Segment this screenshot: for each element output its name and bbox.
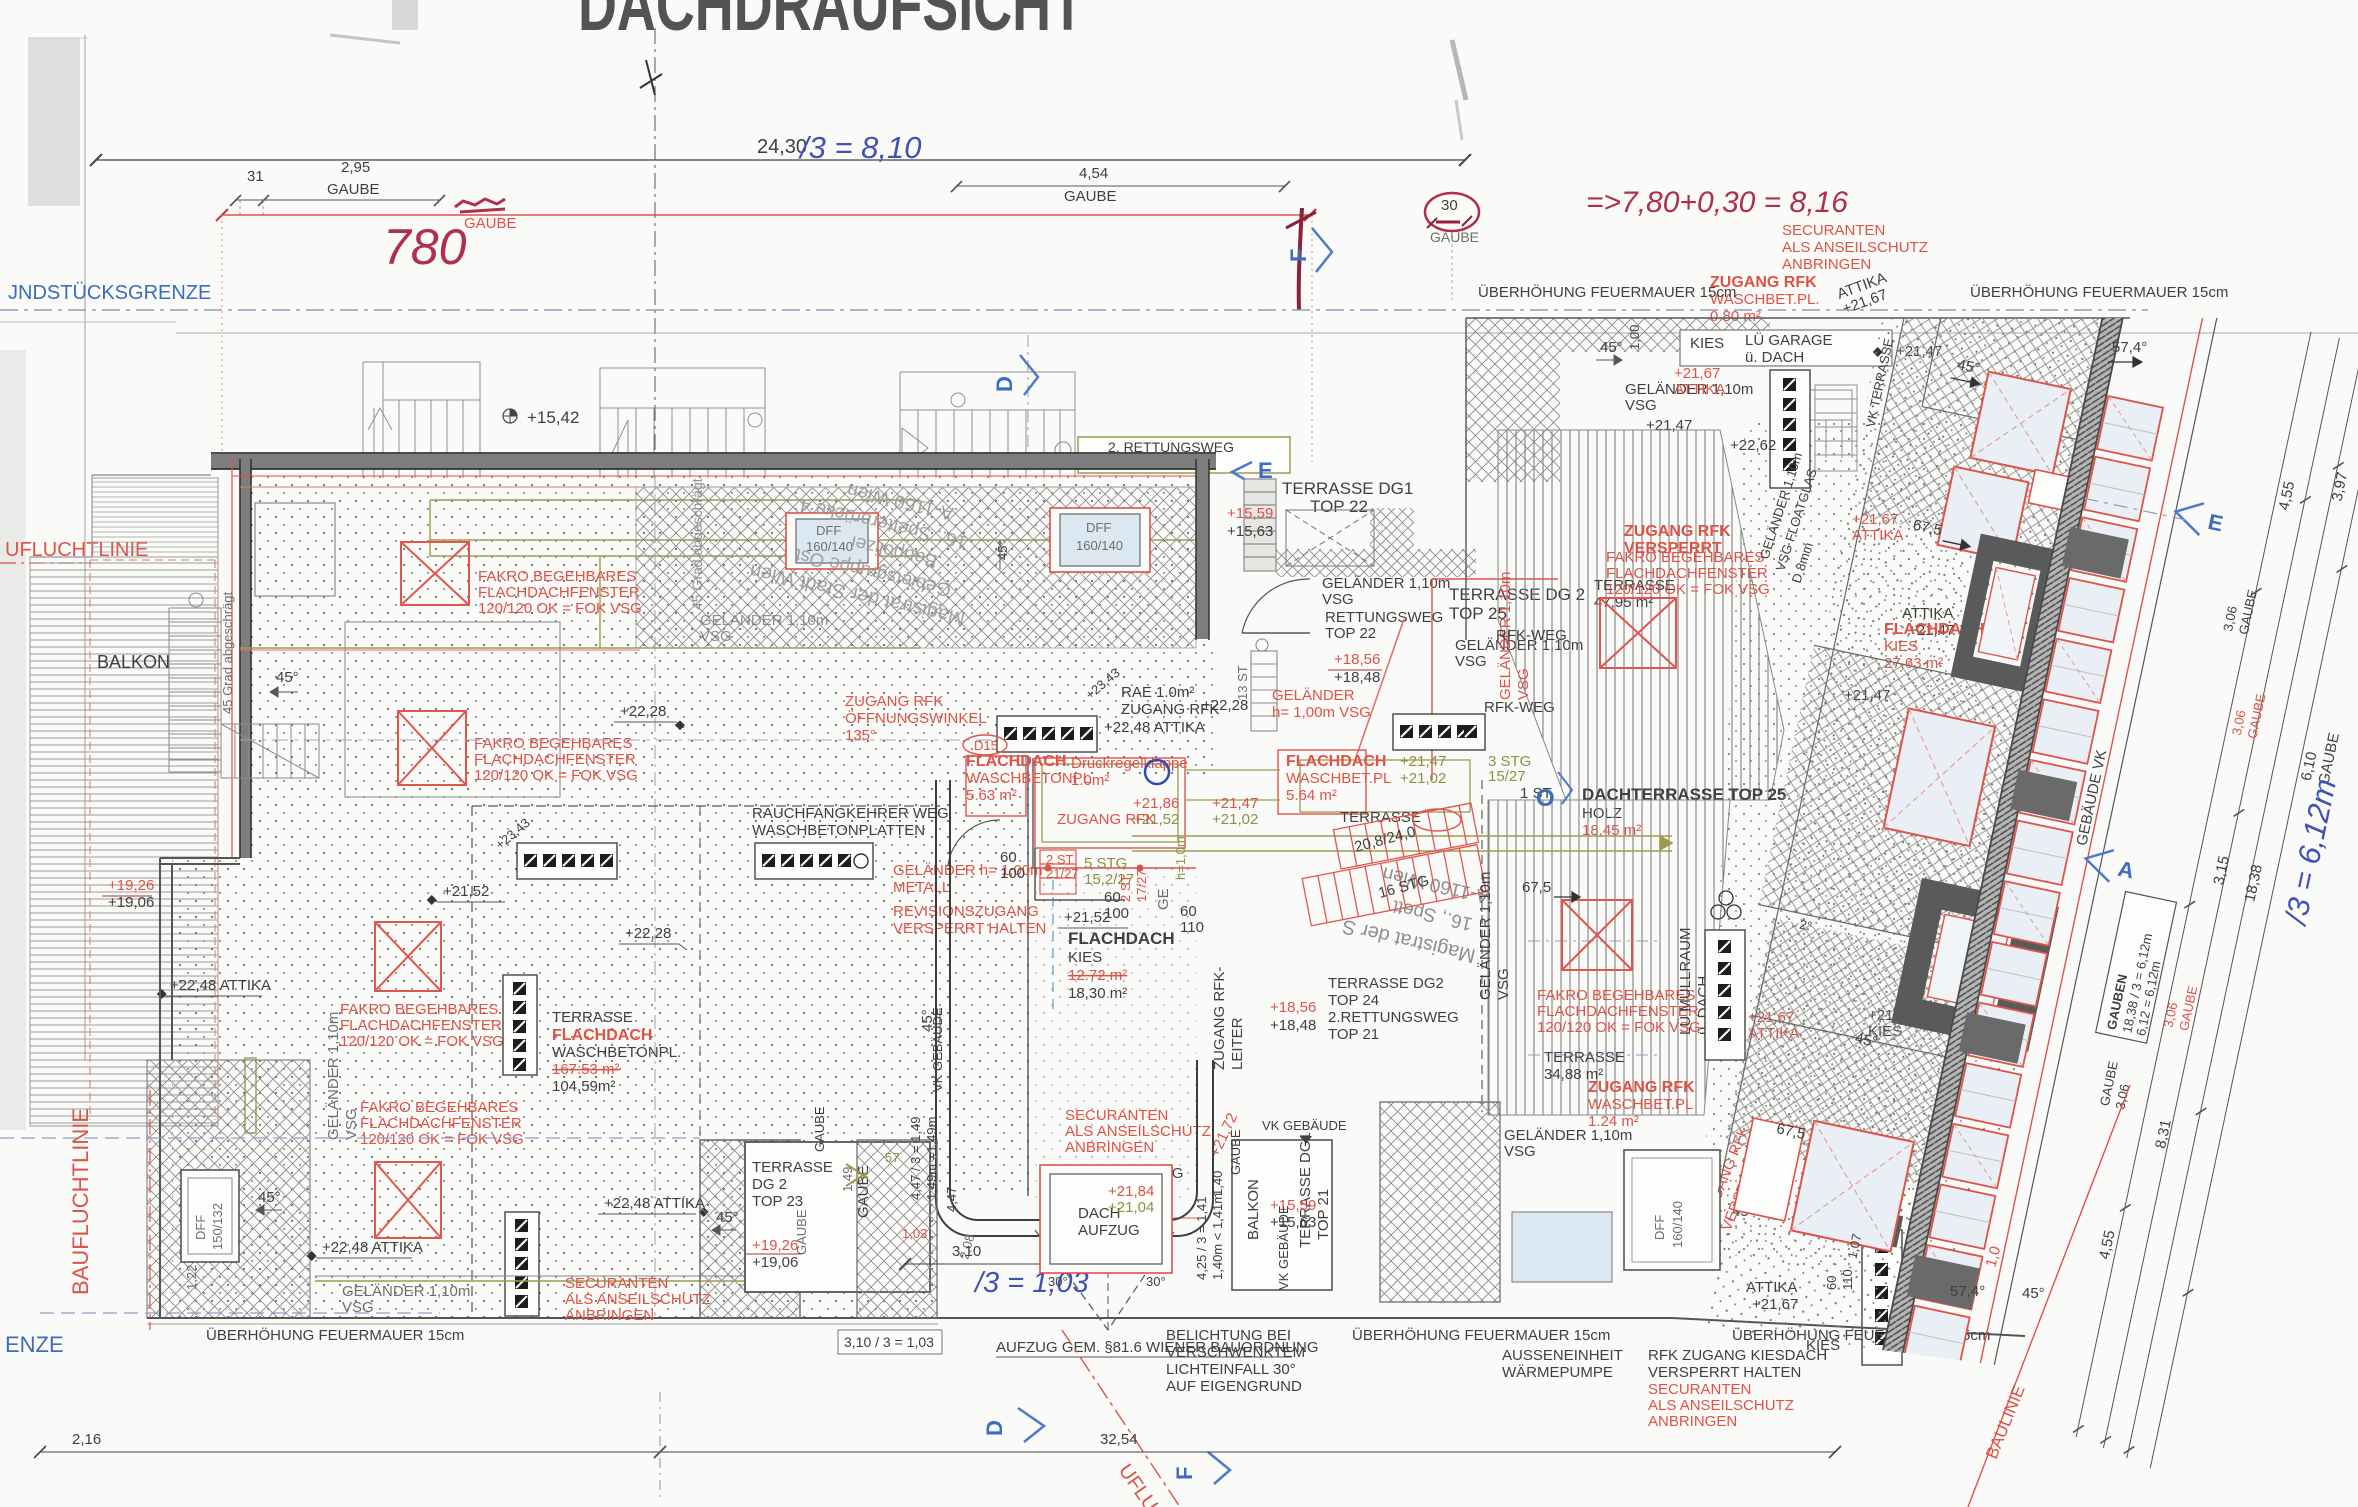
svg-text:GAUBE: GAUBE bbox=[1430, 229, 1479, 245]
svg-text:+19,26: +19,26 bbox=[108, 877, 154, 894]
svg-text:160/140: 160/140 bbox=[1076, 538, 1123, 553]
svg-text:F: F bbox=[1172, 1467, 1197, 1480]
svg-text:+22,48 ATTIKA: +22,48 ATTIKA bbox=[604, 1195, 705, 1212]
svg-text:45 Grad abgeschrägt: 45 Grad abgeschrägt bbox=[220, 591, 235, 714]
svg-text:+21,02: +21,02 bbox=[1400, 770, 1446, 787]
svg-text:+18,48: +18,48 bbox=[1334, 669, 1380, 686]
svg-text:VSG: VSG bbox=[1515, 668, 1532, 700]
svg-text:TERRASSE DG1: TERRASSE DG1 bbox=[1282, 479, 1413, 498]
svg-text:57,4°: 57,4° bbox=[2112, 339, 2147, 356]
svg-text:1,22: 1,22 bbox=[184, 1265, 199, 1290]
svg-text:+22,62: +22,62 bbox=[1730, 437, 1776, 454]
svg-text:ZUGANG RFK-: ZUGANG RFK- bbox=[1211, 967, 1228, 1070]
svg-text:SECURANTEN: SECURANTEN bbox=[1065, 1107, 1168, 1124]
svg-text:O: O bbox=[1536, 785, 1555, 812]
svg-text:45 Grad abgeschrägt: 45 Grad abgeschrägt bbox=[689, 478, 705, 610]
svg-text:FLACHDACHFENSTER: FLACHDACHFENSTER bbox=[340, 1017, 502, 1034]
svg-text:ANBRINGEN: ANBRINGEN bbox=[565, 1307, 654, 1324]
svg-text:ZUGANG RFK: ZUGANG RFK bbox=[845, 693, 943, 710]
svg-text:LÜ MÜLLRAUM: LÜ MÜLLRAUM bbox=[1676, 927, 1694, 1035]
svg-text:LICHTEINFALL 30°: LICHTEINFALL 30° bbox=[1166, 1361, 1296, 1378]
svg-text:+21,86: +21,86 bbox=[1133, 795, 1179, 812]
svg-text:4,54: 4,54 bbox=[1079, 165, 1108, 182]
svg-text:WASCHBET.PL: WASCHBET.PL bbox=[1588, 1096, 1693, 1113]
svg-text:+21,04: +21,04 bbox=[1108, 1199, 1154, 1216]
svg-text:+21,47: +21,47 bbox=[1212, 795, 1258, 812]
svg-text:LEITER: LEITER bbox=[1229, 1017, 1246, 1070]
svg-text:FLACHDACHFENSTER: FLACHDACHFENSTER bbox=[474, 751, 636, 768]
svg-text:100: 100 bbox=[1000, 865, 1025, 882]
svg-text:TOP 21: TOP 21 bbox=[1328, 1026, 1379, 1043]
svg-text:1,40: 1,40 bbox=[1210, 1171, 1225, 1196]
svg-text:ANBRINGEN: ANBRINGEN bbox=[1782, 256, 1871, 273]
svg-text:FAKRO BEGEHBARES: FAKRO BEGEHBARES bbox=[474, 735, 632, 752]
svg-text:VSG: VSG bbox=[1504, 1143, 1536, 1160]
svg-text:FAKRO BEGEHBARES: FAKRO BEGEHBARES bbox=[1606, 549, 1764, 566]
svg-text:FLACHDACHFENSTER: FLACHDACHFENSTER bbox=[478, 584, 640, 601]
svg-text:BAUFLUCHTLINIE: BAUFLUCHTLINIE bbox=[68, 1108, 93, 1295]
svg-text:GAUBE: GAUBE bbox=[1228, 1129, 1243, 1175]
svg-text:Druckregelklappe: Druckregelklappe bbox=[1071, 755, 1188, 772]
svg-text:AUSSENEINHEIT: AUSSENEINHEIT bbox=[1502, 1347, 1623, 1364]
svg-text:1.0m²: 1.0m² bbox=[1071, 772, 1109, 789]
svg-text:+22,48 ATTIKA: +22,48 ATTIKA bbox=[322, 1239, 423, 1256]
svg-text:FLACHDACH: FLACHDACH bbox=[552, 1027, 652, 1044]
svg-text:WÄRMEPUMPE: WÄRMEPUMPE bbox=[1502, 1364, 1613, 1381]
svg-text:VK GEBÄUDE: VK GEBÄUDE bbox=[1276, 1205, 1291, 1290]
svg-text:VSG: VSG bbox=[700, 628, 732, 645]
svg-text:GAUBE: GAUBE bbox=[794, 1209, 809, 1255]
svg-text:32,54: 32,54 bbox=[1100, 1431, 1138, 1448]
svg-text:45°: 45° bbox=[995, 540, 1010, 560]
svg-text:JNDSTÜCKSGRENZE: JNDSTÜCKSGRENZE bbox=[8, 282, 211, 304]
svg-text:VK GEBÄUDE: VK GEBÄUDE bbox=[1262, 1118, 1347, 1133]
svg-text:135°: 135° bbox=[845, 727, 876, 744]
svg-text:ÜBERHÖHUNG FEUERMAUER 15cm: ÜBERHÖHUNG FEUERMAUER 15cm bbox=[206, 1326, 464, 1344]
svg-text:+21,84: +21,84 bbox=[1108, 1183, 1154, 1200]
svg-text:VERSPERRT HALTEN: VERSPERRT HALTEN bbox=[1648, 1364, 1801, 1381]
svg-text:VERSCHWENKTEM: VERSCHWENKTEM bbox=[1166, 1344, 1305, 1361]
svg-text:1,49: 1,49 bbox=[840, 1167, 855, 1192]
svg-text:31: 31 bbox=[247, 168, 264, 185]
svg-text:5.63 m²: 5.63 m² bbox=[966, 787, 1017, 804]
svg-text:TOP 21: TOP 21 bbox=[1315, 1189, 1332, 1240]
svg-text:GELÄNDER 1,10m: GELÄNDER 1,10m bbox=[325, 1012, 342, 1140]
svg-text:+19,26: +19,26 bbox=[752, 1237, 798, 1254]
svg-text:FAKRO BEGEHBARES: FAKRO BEGEHBARES bbox=[340, 1001, 498, 1018]
svg-text:18,30 m²: 18,30 m² bbox=[1068, 985, 1127, 1002]
svg-text:+21,52: +21,52 bbox=[443, 883, 489, 900]
svg-text:1,49m =1,49m: 1,49m =1,49m bbox=[924, 1117, 939, 1200]
svg-text:12.72 m²: 12.72 m² bbox=[1068, 967, 1127, 984]
svg-text:2,95: 2,95 bbox=[341, 159, 370, 176]
svg-text:DFF: DFF bbox=[1652, 1215, 1667, 1240]
svg-text:FLACHDACH: FLACHDACH bbox=[1068, 929, 1175, 948]
svg-text:DACHDRAUFSICHT: DACHDRAUFSICHT bbox=[578, 0, 1084, 46]
svg-text:REVISIONSZUGANG: REVISIONSZUGANG bbox=[893, 903, 1039, 920]
svg-text:1,00: 1,00 bbox=[1627, 325, 1642, 350]
svg-text:VK GEBÄUDE: VK GEBÄUDE bbox=[930, 1007, 945, 1092]
svg-text:120/120 OK = FOK VSG: 120/120 OK = FOK VSG bbox=[1606, 581, 1770, 598]
svg-text:GELÄNDER 1,10m: GELÄNDER 1,10m bbox=[342, 1283, 470, 1300]
svg-text:GAUBE: GAUBE bbox=[327, 181, 380, 198]
svg-text:ENZE: ENZE bbox=[5, 1332, 64, 1357]
svg-text:ZUGANG RFK: ZUGANG RFK bbox=[1624, 523, 1731, 540]
svg-text:/3 = 8,10: /3 = 8,10 bbox=[798, 130, 922, 165]
svg-text:5.64 m²: 5.64 m² bbox=[1286, 787, 1337, 804]
svg-text:TERRASSE: TERRASSE bbox=[1544, 1049, 1625, 1066]
svg-text:1,03: 1,03 bbox=[902, 1226, 927, 1241]
svg-text:KIES: KIES bbox=[1690, 335, 1724, 352]
svg-text:ÜBERHÖHUNG FEUERMAUER 15cm: ÜBERHÖHUNG FEUERMAUER 15cm bbox=[1970, 283, 2228, 301]
svg-text:+15,63: +15,63 bbox=[1227, 523, 1273, 540]
svg-text:ANBRINGEN: ANBRINGEN bbox=[1065, 1139, 1154, 1156]
svg-text:ÖFFNUNGSWINKEL: ÖFFNUNGSWINKEL bbox=[845, 709, 987, 727]
svg-text:67,5: 67,5 bbox=[1522, 879, 1551, 896]
svg-text:D: D bbox=[992, 376, 1017, 392]
svg-text:ZUGANG RFK: ZUGANG RFK bbox=[1588, 1079, 1695, 1096]
svg-text:GAUBE: GAUBE bbox=[1064, 188, 1117, 205]
svg-text:GELÄNDER 1,10m: GELÄNDER 1,10m bbox=[1477, 872, 1494, 1000]
svg-text:+19,06: +19,06 bbox=[108, 894, 154, 911]
svg-text:BELICHTUNG BEI: BELICHTUNG BEI bbox=[1166, 1327, 1291, 1344]
svg-text:F: F bbox=[1286, 249, 1311, 262]
svg-text:780: 780 bbox=[383, 219, 467, 275]
svg-text:GAUBE: GAUBE bbox=[812, 1106, 827, 1152]
svg-text:+15,42: +15,42 bbox=[527, 408, 579, 427]
svg-text:+18,56: +18,56 bbox=[1270, 999, 1316, 1016]
svg-text:120/120 OK = FOK VSG: 120/120 OK = FOK VSG bbox=[474, 767, 638, 784]
svg-text:SECURANTEN: SECURANTEN bbox=[565, 1275, 668, 1292]
svg-text:FAKRO BEGEHBARES: FAKRO BEGEHBARES bbox=[1537, 987, 1695, 1004]
svg-text:BALKON: BALKON bbox=[1245, 1179, 1262, 1240]
svg-text:RFK-WEG: RFK-WEG bbox=[1496, 627, 1567, 644]
svg-text:1,40m < 1,41m: 1,40m < 1,41m bbox=[1210, 1193, 1225, 1280]
svg-text:160/140: 160/140 bbox=[1670, 1201, 1685, 1248]
svg-text:D: D bbox=[982, 1420, 1007, 1436]
svg-text:4,25 / 3 = 1,41: 4,25 / 3 = 1,41 bbox=[1194, 1197, 1209, 1280]
svg-text:DG 2: DG 2 bbox=[752, 1176, 787, 1193]
svg-text:ANBRINGEN: ANBRINGEN bbox=[1648, 1413, 1737, 1430]
svg-text:TOP 24: TOP 24 bbox=[1328, 992, 1379, 1009]
svg-text:ÜBERHÖHUNG FEUERMAUER 15cm: ÜBERHÖHUNG FEUERMAUER 15cm bbox=[1478, 283, 1736, 301]
svg-text:+18,48: +18,48 bbox=[1270, 1017, 1316, 1034]
svg-text:AUF EIGENGRUND: AUF EIGENGRUND bbox=[1166, 1378, 1302, 1395]
svg-text:TERRASSE DG2: TERRASSE DG2 bbox=[1328, 975, 1444, 992]
svg-text:VSG: VSG bbox=[1495, 968, 1512, 1000]
svg-text:GELÄNDER 1,10m: GELÄNDER 1,10m bbox=[700, 612, 828, 629]
svg-text:+22,28: +22,28 bbox=[620, 703, 666, 720]
svg-text:FAKRO BEGEHBARES: FAKRO BEGEHBARES bbox=[360, 1099, 518, 1116]
svg-text:GAUBE: GAUBE bbox=[464, 215, 517, 232]
svg-text:SECURANTEN: SECURANTEN bbox=[1782, 222, 1885, 239]
svg-text:13 ST: 13 ST bbox=[1235, 665, 1250, 700]
svg-text:TOP 23: TOP 23 bbox=[752, 1193, 803, 1210]
svg-text:ALS ANSEILSCHUTZ: ALS ANSEILSCHUTZ bbox=[565, 1291, 711, 1308]
svg-text:+21,67: +21,67 bbox=[1674, 365, 1720, 382]
svg-text:ALS ANSEILSCHUTZ: ALS ANSEILSCHUTZ bbox=[1782, 239, 1928, 256]
svg-text:150/132: 150/132 bbox=[210, 1203, 225, 1250]
svg-text:ZUGANG RFK: ZUGANG RFK bbox=[1057, 811, 1155, 828]
svg-text:+21,47: +21,47 bbox=[1400, 753, 1446, 770]
svg-text:FLACHDACHFENSTER: FLACHDACHFENSTER bbox=[1606, 565, 1768, 582]
svg-text:+22,48 ATTIKA: +22,48 ATTIKA bbox=[1104, 719, 1205, 736]
svg-text:AUFZUG: AUFZUG bbox=[1078, 1222, 1140, 1239]
svg-text:WASCHBETONPLATTEN: WASCHBETONPLATTEN bbox=[752, 822, 925, 839]
svg-text:45°: 45° bbox=[2022, 1285, 2045, 1302]
svg-text:FLACHDACH: FLACHDACH bbox=[1286, 753, 1386, 770]
svg-text:4,47 / 3 = 1,49: 4,47 / 3 = 1,49 bbox=[908, 1117, 923, 1200]
svg-text:METALL: METALL bbox=[893, 879, 950, 896]
svg-text:LÜ GARAGE: LÜ GARAGE bbox=[1745, 331, 1833, 349]
svg-text:VSG: VSG bbox=[343, 1108, 360, 1140]
svg-text:TERRASSE: TERRASSE bbox=[552, 1009, 633, 1026]
svg-text:=>7,80+0,30 = 8,16: =>7,80+0,30 = 8,16 bbox=[1586, 186, 1848, 219]
svg-text:2 ST: 2 ST bbox=[1046, 852, 1074, 867]
svg-text:GAUBE: GAUBE bbox=[855, 1165, 872, 1218]
svg-text:30°: 30° bbox=[1048, 1274, 1068, 1289]
svg-text:104,59m²: 104,59m² bbox=[552, 1078, 615, 1095]
svg-text:VSG: VSG bbox=[1455, 653, 1487, 670]
svg-text:FLACHDACHFENSTER: FLACHDACHFENSTER bbox=[360, 1115, 522, 1132]
svg-text:57,4°: 57,4° bbox=[1950, 1283, 1985, 1300]
svg-text:TOP 22: TOP 22 bbox=[1310, 497, 1368, 516]
svg-text:RAE 1.0m²: RAE 1.0m² bbox=[1121, 684, 1194, 701]
svg-text:TOP 22: TOP 22 bbox=[1325, 625, 1376, 642]
svg-text:45°: 45° bbox=[1600, 339, 1623, 356]
svg-text:SECURANTEN: SECURANTEN bbox=[1648, 1381, 1751, 1398]
svg-text:DFF: DFF bbox=[816, 523, 841, 538]
svg-text:RAUCHFANGKEHRER WEG: RAUCHFANGKEHRER WEG bbox=[752, 805, 949, 822]
svg-text:ü. DACH: ü. DACH bbox=[1745, 349, 1804, 366]
svg-text:FAKRO BEGEHBARES: FAKRO BEGEHBARES bbox=[478, 568, 636, 585]
svg-text:GELÄNDER 1,10m: GELÄNDER 1,10m bbox=[1322, 575, 1450, 592]
svg-text:3,10: 3,10 bbox=[952, 1243, 981, 1260]
svg-text:30: 30 bbox=[1441, 197, 1458, 214]
svg-text:VERSPERRT HALTEN: VERSPERRT HALTEN bbox=[893, 920, 1046, 937]
svg-text:TERRASSE: TERRASSE bbox=[752, 1159, 833, 1176]
svg-text:+22,48 ATTIKA: +22,48 ATTIKA bbox=[170, 977, 271, 994]
svg-text:GELÄNDER: GELÄNDER bbox=[1272, 687, 1355, 704]
svg-text:15/27: 15/27 bbox=[1488, 768, 1526, 785]
svg-text:+22,28: +22,28 bbox=[1202, 697, 1248, 714]
svg-text:120/120 OK = FOK VSG: 120/120 OK = FOK VSG bbox=[478, 600, 642, 617]
svg-text:D15: D15 bbox=[974, 738, 998, 753]
svg-text:VSG: VSG bbox=[1625, 397, 1657, 414]
svg-text:57: 57 bbox=[885, 1150, 899, 1165]
svg-text:DFF: DFF bbox=[193, 1215, 208, 1240]
svg-text:+15,59: +15,59 bbox=[1227, 505, 1273, 522]
svg-text:h= 1,00m VSG: h= 1,00m VSG bbox=[1272, 704, 1371, 721]
svg-text:45°: 45° bbox=[276, 669, 299, 686]
svg-text:GELÄNDER 1,10m: GELÄNDER 1,10m bbox=[1504, 1127, 1632, 1144]
svg-text:2.RETTUNGSWEG: 2.RETTUNGSWEG bbox=[1328, 1009, 1459, 1026]
svg-text:DFF: DFF bbox=[1086, 520, 1111, 535]
svg-text:ÜBERHÖHUNG FEUERMAUER 15cm: ÜBERHÖHUNG FEUERMAUER 15cm bbox=[1352, 1326, 1610, 1344]
svg-text:RETTUNGSWEG: RETTUNGSWEG bbox=[1325, 609, 1443, 626]
svg-text:FLACHDACHFENSTER: FLACHDACHFENSTER bbox=[1537, 1003, 1699, 1020]
svg-text:RFK ZUGANG KIESDACH: RFK ZUGANG KIESDACH bbox=[1648, 1347, 1827, 1364]
svg-text:ALS ANSEILSCHUTZ: ALS ANSEILSCHUTZ bbox=[1648, 1397, 1794, 1414]
svg-text:45°: 45° bbox=[258, 1189, 281, 1206]
svg-text:120/120 OK = FOK VSG: 120/120 OK = FOK VSG bbox=[360, 1131, 524, 1148]
svg-text:3,10 / 3 = 1,03: 3,10 / 3 = 1,03 bbox=[844, 1334, 934, 1350]
svg-text:WASCHBETONPL.: WASCHBETONPL. bbox=[552, 1044, 681, 1061]
svg-text:120/120 OK = FOK VSG: 120/120 OK = FOK VSG bbox=[340, 1033, 504, 1050]
svg-text:+22,28: +22,28 bbox=[625, 925, 671, 942]
svg-text:45°: 45° bbox=[716, 1209, 739, 1226]
svg-text:4,47: 4,47 bbox=[944, 1187, 959, 1212]
svg-text:30°: 30° bbox=[1146, 1274, 1166, 1289]
svg-text:2,16: 2,16 bbox=[72, 1431, 101, 1448]
svg-text:BALKON: BALKON bbox=[97, 652, 170, 672]
svg-text:ALS ANSEILSCHUTZ: ALS ANSEILSCHUTZ bbox=[1065, 1123, 1211, 1140]
svg-text:VSG: VSG bbox=[1322, 591, 1354, 608]
svg-text:KIES: KIES bbox=[1068, 949, 1102, 966]
svg-text:WASCHBET.PL: WASCHBET.PL bbox=[1286, 770, 1391, 787]
svg-text:+21,02: +21,02 bbox=[1212, 811, 1258, 828]
svg-text:+19,06: +19,06 bbox=[752, 1254, 798, 1271]
svg-text:+18,56: +18,56 bbox=[1334, 651, 1380, 668]
svg-text:ATTIKA: ATTIKA bbox=[1674, 381, 1725, 398]
svg-text:167:53 m²: 167:53 m² bbox=[552, 1061, 620, 1078]
svg-text:60: 60 bbox=[1000, 849, 1017, 866]
